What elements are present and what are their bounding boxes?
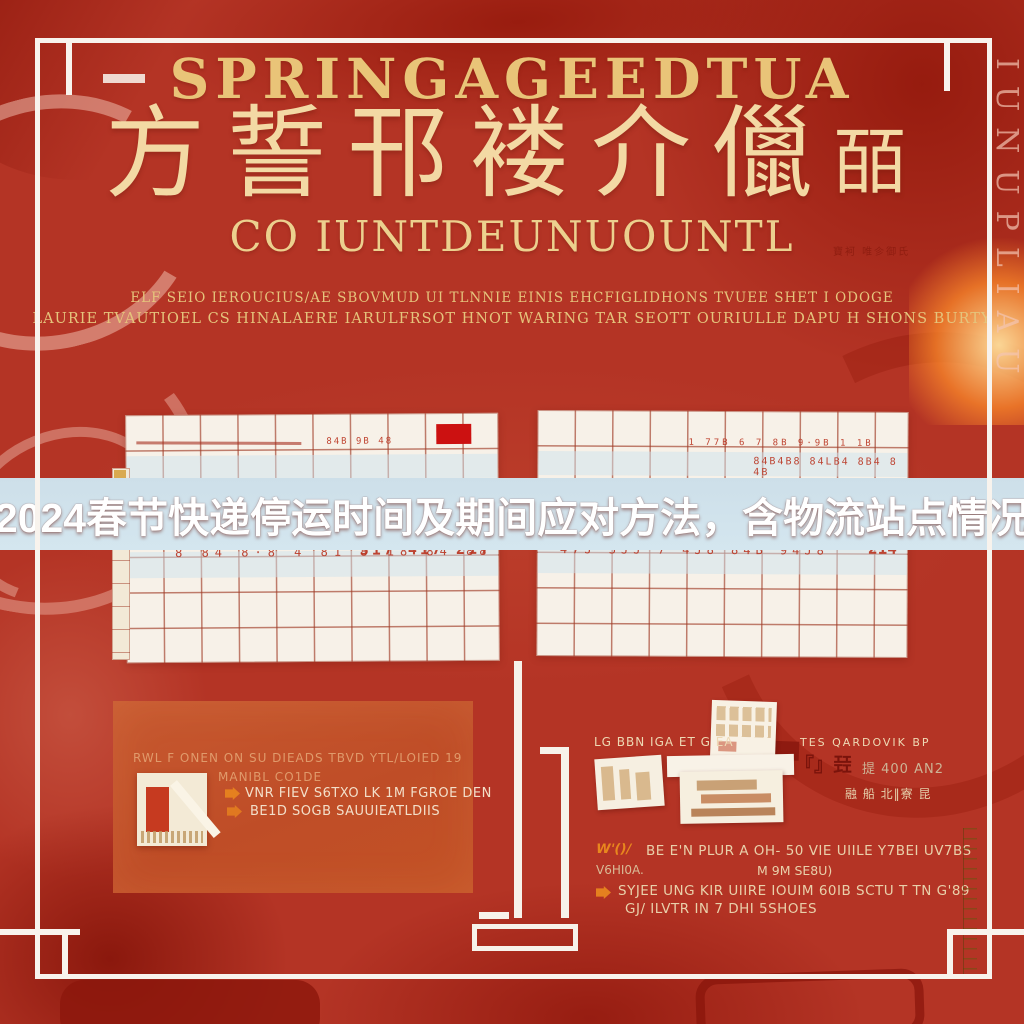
frame-border <box>35 38 992 979</box>
poster: IUNUPLIAU SPRINGAGEEDTUA 方 誓 邗 褛 介 儠 皕 C… <box>0 0 1024 1024</box>
frame-corner-cross <box>947 929 1024 935</box>
frame-corner-cross <box>62 929 68 979</box>
frame-corner-cross <box>947 929 953 979</box>
background-texture <box>60 980 320 1024</box>
frame-corner-tick <box>944 43 950 91</box>
frame-corner-cross <box>0 929 80 935</box>
margin-vertical-text: IUNUPLIAU <box>989 58 1024 868</box>
frame-corner-tick <box>66 43 72 95</box>
